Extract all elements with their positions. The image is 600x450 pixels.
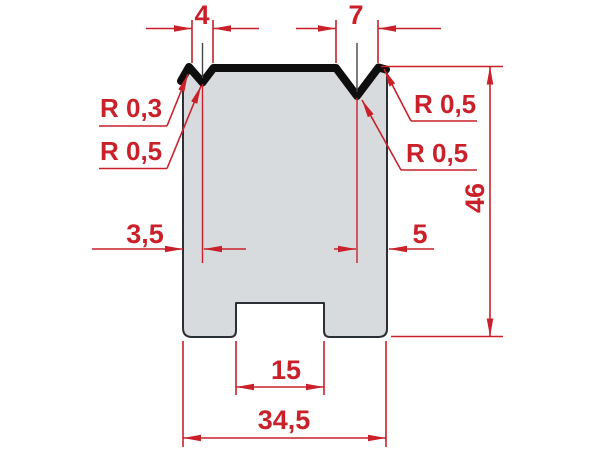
- callout-left-shoulder-radius-label: R 0,3: [100, 93, 162, 123]
- die-technical-drawing: 4 7 46 3,5 5 15 34,5: [0, 0, 600, 450]
- dim-overall-width-label: 34,5: [258, 405, 311, 435]
- dim-base-slot-width-label: 15: [271, 355, 301, 385]
- dim-right-v-offset-label: 5: [412, 219, 427, 249]
- dim-left-v-width-label: 4: [194, 0, 209, 30]
- drawing-canvas: 4 7 46 3,5 5 15 34,5: [0, 0, 600, 450]
- dim-right-v-width-label: 7: [348, 0, 363, 30]
- callout-right-v-bottom-radius-label: R 0,5: [406, 138, 468, 168]
- leader-line: [384, 69, 411, 121]
- dim-die-height-label: 46: [460, 183, 490, 213]
- callout-right-shoulder-radius-label: R 0,5: [414, 89, 476, 119]
- dim-left-v-offset-label: 3,5: [126, 219, 164, 249]
- dim-right-v-width: [296, 20, 441, 63]
- callout-left-v-bottom-radius-label: R 0,5: [100, 136, 162, 166]
